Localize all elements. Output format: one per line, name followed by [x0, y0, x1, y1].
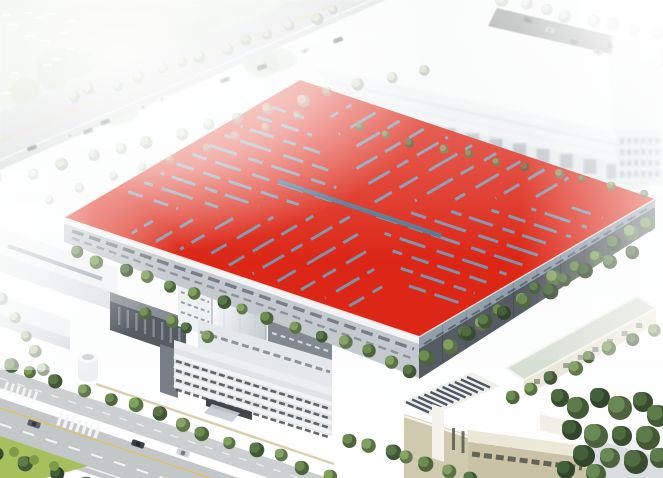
tree: [78, 384, 91, 397]
tree-canopy: [153, 406, 163, 416]
tree-canopy: [218, 296, 227, 305]
tree-canopy: [78, 384, 87, 393]
tree: [223, 437, 235, 449]
tree: [584, 424, 608, 448]
tree-canopy: [385, 356, 394, 365]
tree-canopy: [544, 371, 553, 380]
tree-canopy: [612, 426, 626, 440]
tree: [562, 420, 582, 440]
tree-canopy: [105, 393, 114, 402]
hedge: [29, 455, 39, 465]
tree: [478, 314, 493, 329]
utility-window: [563, 363, 569, 368]
tree: [202, 331, 215, 344]
tree-canopy: [633, 392, 647, 406]
hedge: [49, 461, 59, 471]
tree-canopy: [584, 424, 601, 441]
tree-canopy: [166, 315, 175, 324]
tree-canopy: [386, 445, 397, 456]
tree: [590, 388, 610, 408]
hedge: [9, 447, 19, 457]
utility-window: [534, 379, 540, 384]
tree: [608, 396, 632, 420]
tree: [612, 426, 632, 446]
aerial-rendering-image: [0, 0, 663, 478]
tree-canopy: [419, 350, 430, 361]
tree: [567, 397, 589, 419]
tree-canopy: [361, 439, 371, 449]
tree-canopy: [181, 322, 189, 330]
tree: [295, 461, 309, 475]
tree-canopy: [600, 448, 614, 462]
tree: [442, 465, 456, 478]
tree: [260, 312, 273, 325]
window-slit: [152, 319, 154, 337]
tree: [506, 391, 520, 405]
tree-canopy: [647, 405, 662, 420]
tree-canopy: [524, 383, 533, 392]
tree-canopy: [250, 443, 260, 453]
tree-canopy: [295, 461, 305, 471]
tree: [624, 450, 648, 474]
rd-window: [452, 428, 455, 450]
tree: [250, 443, 265, 458]
tree-canopy: [202, 331, 211, 340]
tree-canopy: [478, 314, 488, 324]
tree: [105, 393, 118, 406]
tree: [418, 457, 433, 472]
tree: [497, 306, 511, 320]
tree: [153, 406, 167, 420]
tree-canopy: [461, 326, 472, 337]
tree: [403, 365, 417, 379]
tree: [48, 374, 62, 388]
tree: [419, 350, 434, 365]
tree-canopy: [400, 450, 409, 459]
tree: [361, 439, 376, 453]
tree: [600, 448, 620, 468]
rd-white-accent: [432, 404, 444, 462]
tree-canopy: [18, 456, 29, 467]
tree-canopy: [624, 450, 641, 467]
tree-canopy: [403, 365, 413, 375]
tree: [218, 295, 232, 309]
tree-canopy: [176, 418, 186, 428]
tree-canopy: [497, 306, 507, 316]
tree: [573, 445, 595, 467]
tree-canopy: [316, 331, 324, 339]
tree-canopy: [223, 437, 232, 446]
rd-window: [462, 431, 465, 453]
tree: [461, 326, 476, 341]
tree-canopy: [636, 426, 653, 443]
tree: [290, 322, 302, 334]
tree: [636, 426, 660, 450]
tree: [400, 450, 413, 463]
tree-canopy: [290, 322, 298, 330]
tree-canopy: [362, 344, 371, 353]
tree: [188, 287, 200, 299]
tree: [129, 398, 144, 413]
tree-canopy: [608, 396, 625, 413]
tree-canopy: [443, 339, 453, 349]
tree-canopy: [442, 465, 452, 475]
tree: [569, 361, 584, 376]
haze-right-edge: [520, 0, 663, 360]
tree: [195, 427, 210, 442]
tree-canopy: [586, 464, 600, 478]
tree: [385, 356, 398, 369]
tree: [386, 445, 402, 461]
tree-canopy: [237, 303, 245, 311]
tree-canopy: [590, 388, 604, 402]
tree: [362, 344, 375, 357]
tree-canopy: [562, 420, 576, 434]
factory-campus-scene: [0, 0, 663, 478]
tree: [551, 389, 569, 407]
tree: [176, 418, 190, 432]
tree-canopy: [275, 449, 284, 458]
tree-canopy: [339, 335, 349, 345]
tree-canopy: [188, 287, 197, 296]
tree: [443, 339, 458, 354]
tree-canopy: [557, 461, 570, 474]
tree-canopy: [418, 457, 429, 468]
tree-canopy: [551, 389, 564, 402]
tree: [166, 315, 179, 328]
window-slit: [161, 322, 163, 340]
tree: [275, 449, 288, 462]
tree: [544, 371, 558, 384]
tree: [316, 331, 328, 343]
tree-canopy: [260, 312, 269, 321]
tree-canopy: [573, 445, 588, 460]
tree: [339, 335, 353, 349]
tree-canopy: [129, 398, 139, 408]
tree-canopy: [506, 391, 515, 400]
tree-canopy: [48, 374, 58, 384]
tree-canopy: [569, 361, 579, 371]
tree: [343, 434, 357, 448]
tree-canopy: [195, 427, 205, 437]
tree-canopy: [567, 397, 582, 412]
tree-canopy: [343, 434, 353, 444]
tree: [524, 383, 537, 396]
